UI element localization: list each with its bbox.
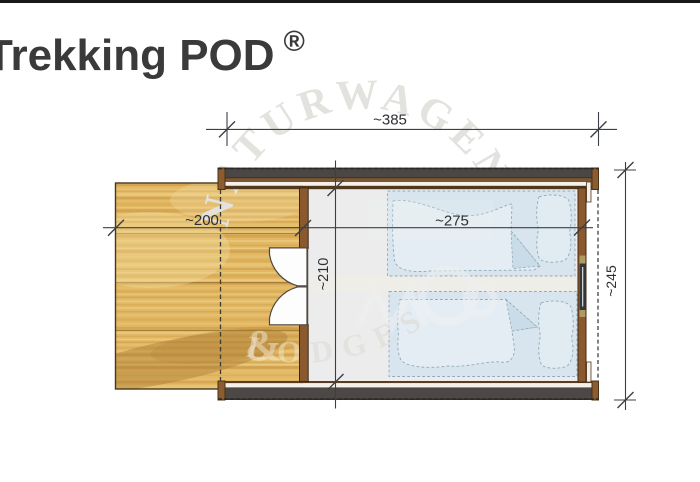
svg-text:~200: ~200 — [185, 212, 219, 229]
svg-text:&: & — [245, 321, 282, 370]
svg-text:®: ® — [284, 26, 305, 58]
svg-text:~245: ~245 — [603, 265, 619, 297]
svg-text:~385: ~385 — [373, 112, 407, 129]
svg-text:Trekking POD: Trekking POD — [0, 31, 275, 80]
svg-text:~275: ~275 — [435, 213, 469, 230]
svg-text:~210: ~210 — [316, 258, 332, 291]
